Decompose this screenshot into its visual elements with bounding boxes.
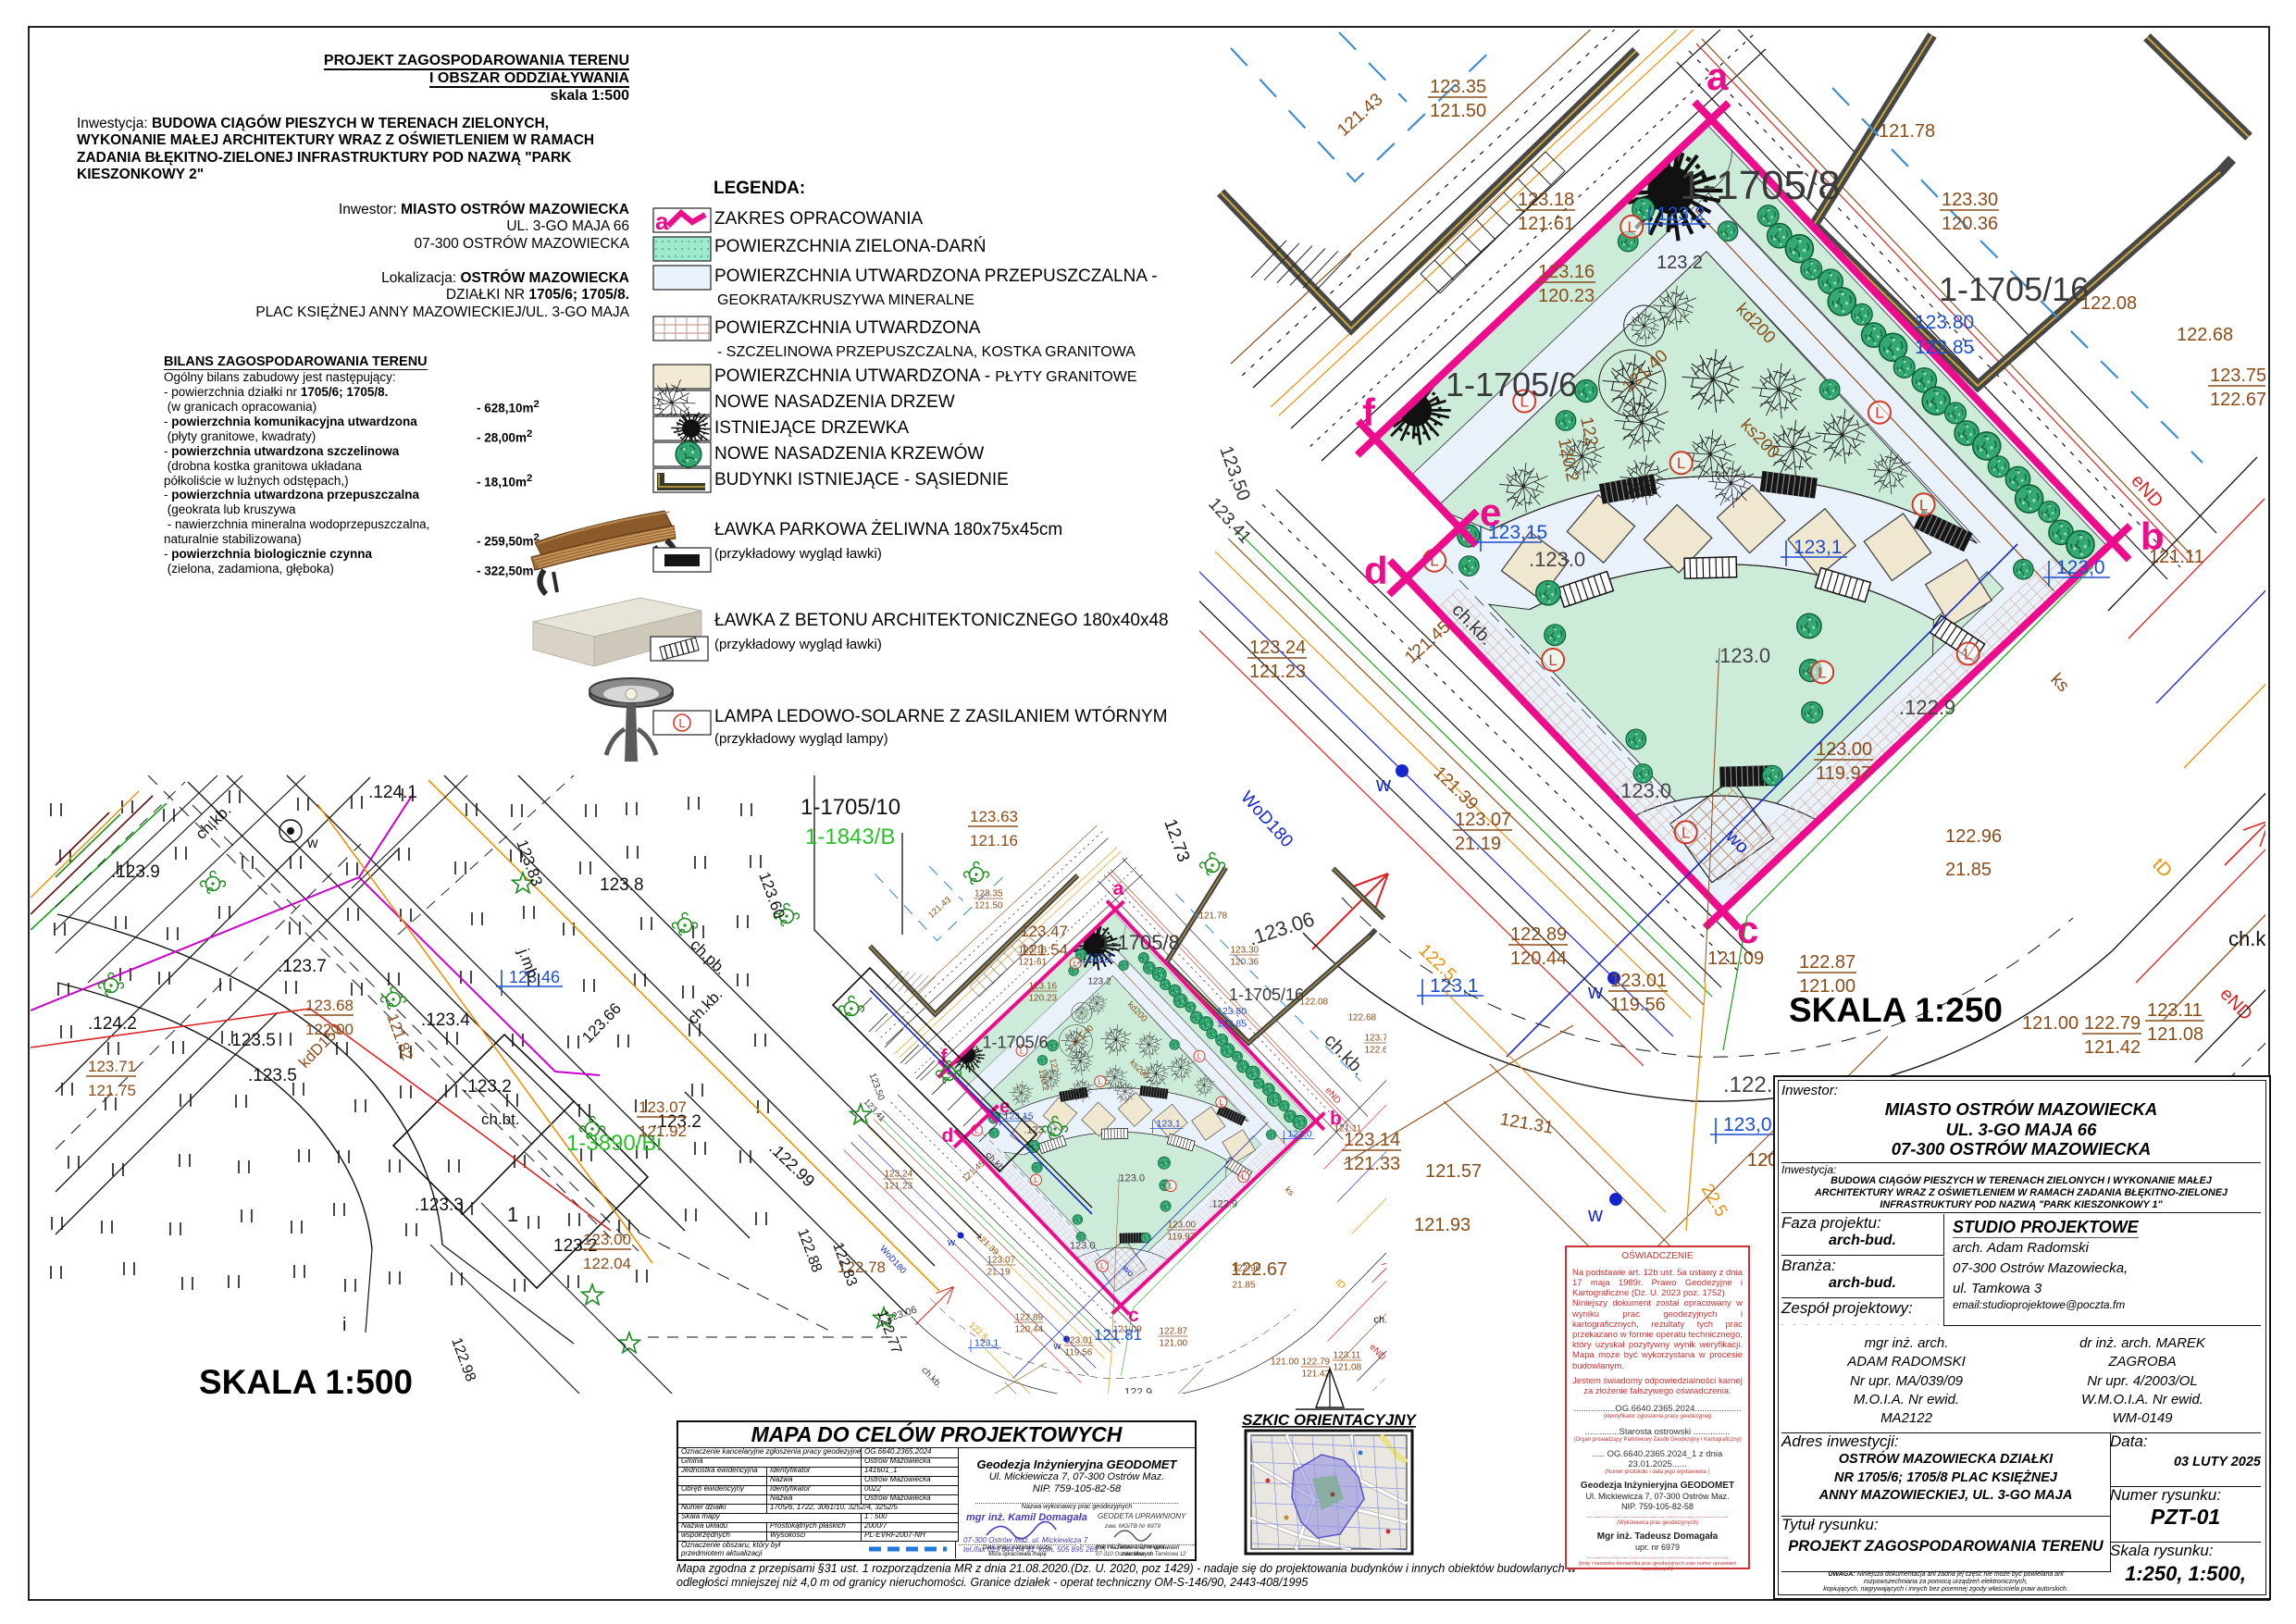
svg-text:.123.7: .123.7: [278, 957, 327, 976]
svg-text:122.00: 122.00: [305, 1021, 354, 1038]
svg-text:ch.pb.: ch.pb.: [687, 936, 730, 978]
svg-text:.123.3: .123.3: [415, 1196, 464, 1215]
svg-text:122.88: 122.88: [794, 1227, 825, 1275]
svg-text:1-1705/10: 1-1705/10: [800, 795, 900, 820]
svg-text:.123.5: .123.5: [227, 1031, 276, 1050]
svg-text:SZKIC ORIENTACYJNY: SZKIC ORIENTACYJNY: [1242, 1411, 1417, 1429]
svg-text:123.07: 123.07: [639, 1098, 687, 1116]
svg-text:.122.99: .122.99: [765, 1138, 818, 1190]
svg-text:122.98: 122.98: [448, 1336, 478, 1384]
svg-text:07-300 Ostrów Maz. ul. Mickiew: 07-300 Ostrów Maz. ul. Mickiewicza 7: [963, 1536, 1088, 1544]
svg-text:i: i: [342, 1315, 346, 1335]
svg-text:.124.2: .124.2: [88, 1014, 137, 1034]
svg-text:ch.kb.: ch.kb.: [684, 986, 726, 1028]
svg-text:GEODETA UPRAWNIONY: GEODETA UPRAWNIONY: [1098, 1512, 1186, 1520]
svg-text:123.47: 123.47: [1020, 923, 1068, 940]
svg-text:123.00: 123.00: [583, 1231, 631, 1248]
svg-text:121.75: 121.75: [88, 1082, 136, 1099]
svg-text:zaw. MGiTB Nr 6979: zaw. MGiTB Nr 6979: [1104, 1523, 1160, 1530]
svg-text:L: L: [678, 716, 685, 730]
svg-text:123.71: 123.71: [88, 1058, 136, 1075]
svg-text:123.63: 123.63: [970, 808, 1018, 825]
svg-text:12.73: 12.73: [1160, 817, 1193, 865]
svg-text:.123.9: .123.9: [111, 862, 160, 882]
svg-text:.123.4: .123.4: [421, 1010, 470, 1030]
svg-text:122.04: 122.04: [583, 1255, 631, 1272]
svg-text:123.83: 123.83: [513, 837, 546, 888]
svg-text:121.54: 121.54: [1020, 941, 1068, 959]
svg-text:ch.bt.: ch.bt.: [481, 1110, 520, 1128]
svg-text:123.8: 123.8: [600, 875, 644, 895]
svg-text:123.68: 123.68: [305, 997, 354, 1014]
svg-text:1-1843/B: 1-1843/B: [805, 824, 895, 849]
svg-text:123.60: 123.60: [755, 870, 788, 921]
svg-text:.123.2: .123.2: [463, 1077, 512, 1097]
svg-text:121.82: 121.82: [383, 1011, 416, 1062]
svg-text:121.81: 121.81: [1094, 1326, 1142, 1344]
svg-text:121.92: 121.92: [639, 1122, 687, 1140]
svg-text:w: w: [306, 836, 318, 851]
svg-text:.124.1: .124.1: [368, 783, 417, 802]
svg-text:mgr inż. Kamil Domagała: mgr inż. Kamil Domagała: [966, 1512, 1087, 1523]
svg-text:121.16: 121.16: [970, 832, 1018, 849]
svg-text:.123.5: .123.5: [248, 1066, 297, 1085]
svg-text:1: 1: [507, 1203, 518, 1226]
svg-text:a: a: [655, 207, 669, 235]
